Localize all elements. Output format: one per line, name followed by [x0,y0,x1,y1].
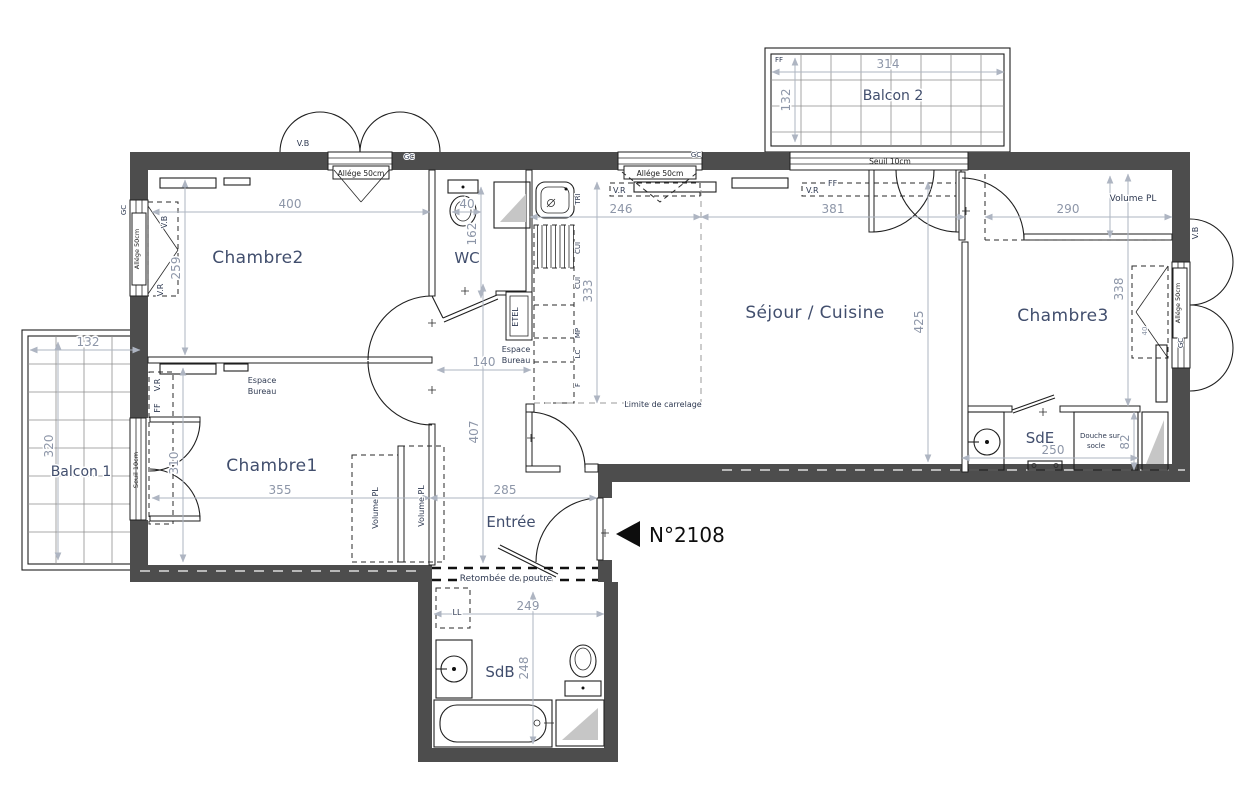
label-volume-pl-chambre3: Volume PL [1110,194,1157,204]
label-limite-carrelage: Limite de carrelage [624,400,702,409]
dim-balcon1-width: 132 [77,335,100,349]
doors [150,170,1055,577]
dim-balcon1-height: 320 [42,435,56,458]
unit-entrance-arrow-icon [616,521,640,547]
label-ff-balcon2-door: FF [828,179,838,188]
label-espace-bureau-sejour-line2: Bureau [502,356,531,365]
dim-hall-width: 140 [473,355,496,369]
label-vr-balcon2-door: V.R [806,186,819,195]
room-label-chambre1: Chambre1 [226,456,318,476]
unit-number: N°2108 [649,523,725,547]
label-kitchen-lc: LC [574,349,582,358]
dim-chambre2-height: 259 [169,257,183,280]
label-kitchen-cui: CUI [574,277,582,289]
dim-balcon2-width: 314 [877,57,900,71]
floor-plan-page: 400 40 246 381 290 259 162 333 425 338 1… [0,0,1248,800]
label-allege-top-left-window: Allége 50cm [338,169,385,178]
balcony-1-railing-grid [22,330,140,570]
label-kitchen-mp: MP [574,328,582,338]
dim-hall-height: 407 [467,421,481,444]
label-allege-left-window: Allége 50cm [133,229,141,269]
label-espace-bureau-chambre1-line2: Bureau [248,387,277,396]
label-douche-line2: socle [1087,442,1105,450]
label-kitchen-cui-hob: CUI [574,242,582,254]
dim-sdb-height: 248 [517,657,531,680]
dim-sejour-width: 381 [822,202,845,216]
label-ff-balcon2-corner: FF [775,56,783,64]
room-label-sde: SdE [1026,429,1055,447]
dim-douche-height: 82 [1118,434,1132,449]
label-gc-top-2: GC [691,151,701,159]
label-allege-top-sejour-window: Allége 50cm [637,169,684,178]
interior-partitions [148,170,1172,565]
label-gc-right-window: GC [1177,338,1185,348]
label-espace-bureau-chambre1-line1: Espace [248,376,277,385]
room-label-sejour-cuisine: Séjour / Cuisine [745,303,884,323]
room-label-balcon2: Balcon 2 [863,88,924,104]
label-etel: ETEL [511,307,520,327]
dim-entree-width: 285 [494,483,517,497]
room-label-wc: WC [454,249,479,267]
label-espace-bureau-sejour-line1: Espace [502,345,531,354]
dim-chambre3-height: 338 [1112,278,1126,301]
label-kitchen-tri: TRI [574,193,582,205]
room-label-chambre2: Chambre2 [212,248,304,268]
dim-wc-width: 40 [459,197,474,211]
dim-chambre1-width: 355 [269,483,292,497]
label-volume-pl-chambre1-a: Volume PL [371,487,380,529]
label-vb-top-window: V.B [297,139,309,148]
room-label-entree: Entrée [486,513,535,531]
label-retombee-poutre: Retombée de poutre [460,573,553,584]
label-volume-pl-chambre1-b: Volume PL [417,485,426,527]
dim-kitchen-width: 246 [610,202,633,216]
dim-chambre1-height: 310 [167,452,181,475]
label-kitchen-f: F [574,383,582,387]
floor-plan-drawing: 400 40 246 381 290 259 162 333 425 338 1… [0,0,1248,800]
dim-chambre3-width: 290 [1057,202,1080,216]
room-label-balcon1: Balcon 1 [51,464,112,480]
label-vr-sejour-window: V.R [613,186,626,195]
dim-chambre2-width: 400 [279,197,302,211]
label-vb-left-window: V.B [160,216,169,228]
dim-sejour-height: 425 [912,311,926,334]
label-vb-chambre3-window: V.B [1191,227,1200,239]
label-douche-line1: Douche sur [1080,432,1120,440]
room-label-sdb: SdB [485,663,514,681]
room-label-chambre3: Chambre3 [1017,306,1109,326]
dimension-texts: 400 40 246 381 290 259 162 333 425 338 1… [42,57,1149,679]
label-vr-left-window: V.R [156,283,165,296]
dim-sdb-width: 249 [517,599,540,613]
label-seuil-balcon1: Seuil 10cm [132,452,140,488]
label-gc-top-1: GC [404,153,414,161]
dim-balcon2-height: 132 [779,89,793,112]
dim-wc-height: 162 [465,223,479,246]
dim-chambre3-window: 40 [1141,327,1149,336]
label-gc-left-window: GC [120,205,128,215]
unit-marker: N°2108 [616,521,725,547]
label-ff-chambre1-door: FF [153,403,162,413]
label-ll-washer: LL [453,608,462,617]
label-seuil-balcon2: Seuil 10cm [869,157,911,166]
label-allege-right-window: Allége 50cm [1174,283,1182,323]
dim-kitchen-height: 333 [581,280,595,303]
label-vr-chambre1-door: V.R [153,378,162,391]
